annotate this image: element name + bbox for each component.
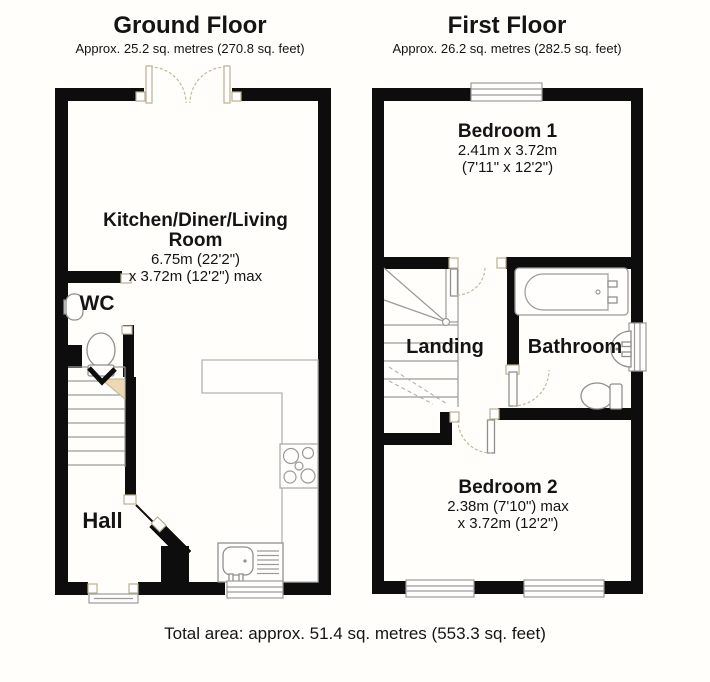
floorplan-page: Ground Floor Approx. 25.2 sq. metres (27… — [0, 0, 710, 682]
kitchen-name-line1: Kitchen/Diner/Living — [88, 211, 303, 231]
bedroom1-window — [471, 83, 542, 101]
ground-floor-subtitle: Approx. 25.2 sq. metres (270.8 sq. feet) — [40, 41, 340, 56]
bathroom-label: Bathroom — [515, 336, 635, 359]
kitchen-dim-line2: x 3.72m (12'2") max — [88, 268, 303, 285]
ground-floor-title: Ground Floor — [40, 12, 340, 40]
kitchen-name-line2: Room — [88, 231, 303, 251]
bedroom2-dim-line2: x 3.72m (12'2") — [400, 515, 616, 532]
bedroom2-window-left — [406, 580, 474, 597]
ground-stairs — [68, 367, 125, 467]
bedroom2-window-right — [524, 580, 604, 597]
bedroom1-name: Bedroom 1 — [400, 122, 615, 142]
first-floor-title: First Floor — [357, 12, 657, 40]
hob-icon — [280, 444, 318, 488]
total-area-label: Total area: approx. 51.4 sq. metres (553… — [0, 624, 710, 644]
bedroom1-label: Bedroom 1 2.41m x 3.72m (7'11" x 12'2") — [400, 122, 615, 176]
french-doors-icon — [136, 66, 241, 103]
bedroom1-door — [449, 258, 506, 296]
bathroom-door — [506, 365, 549, 406]
bedroom2-label: Bedroom 2 2.38m (7'10") max x 3.72m (12'… — [400, 478, 616, 532]
bedroom2-door — [450, 409, 499, 453]
kitchen-label: Kitchen/Diner/Living Room 6.75m (22'2") … — [88, 211, 303, 285]
bedroom2-dim-line1: 2.38m (7'10") max — [400, 498, 616, 515]
bathtub-icon — [515, 268, 628, 315]
bedroom2-name: Bedroom 2 — [400, 478, 616, 498]
kitchen-window — [227, 581, 283, 598]
landing-label: Landing — [385, 336, 505, 359]
wc-label: WC — [72, 292, 122, 316]
front-door — [88, 584, 138, 603]
kitchen-sink-icon — [218, 543, 283, 586]
first-floor-subtitle: Approx. 26.2 sq. metres (282.5 sq. feet) — [357, 41, 657, 56]
kitchen-dim-line1: 6.75m (22'2") — [88, 251, 303, 268]
bedroom1-dim-line1: 2.41m x 3.72m — [400, 142, 615, 159]
bathroom-toilet-icon — [581, 383, 622, 409]
bedroom1-dim-line2: (7'11" x 12'2") — [400, 159, 615, 176]
hall-label: Hall — [70, 508, 135, 534]
